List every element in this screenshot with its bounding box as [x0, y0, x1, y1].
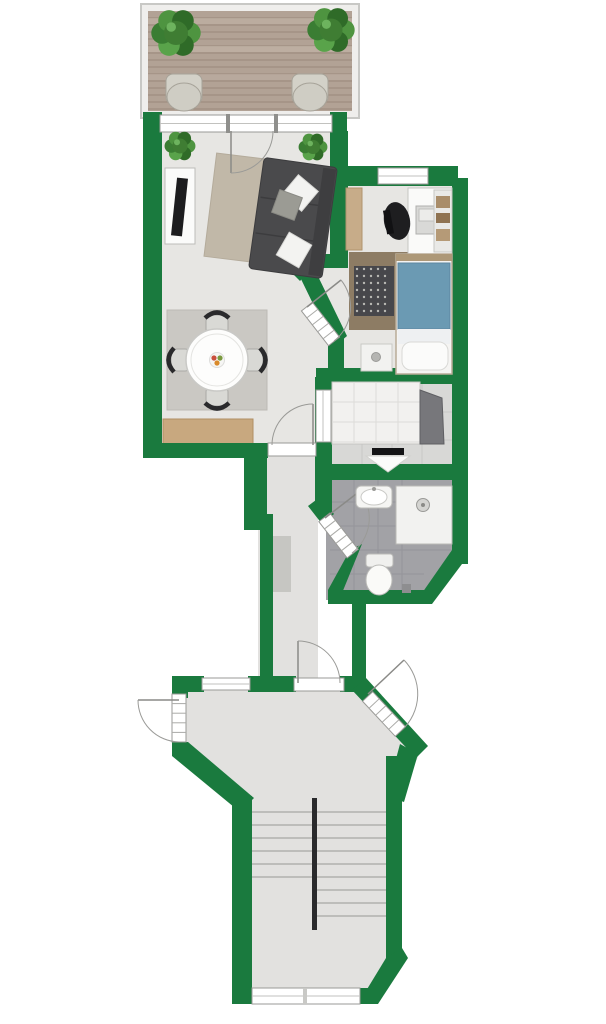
window-living-jamb-1 — [226, 114, 230, 133]
fruit-green — [217, 355, 222, 360]
shelf-book-1 — [436, 196, 450, 208]
wall-corridor-right-lower — [352, 598, 366, 684]
entrance-door-frame — [294, 678, 344, 691]
living-door-frame — [268, 443, 316, 456]
sink-tap — [372, 487, 376, 491]
window-living-jamb-2 — [274, 114, 278, 133]
neighbor-door-left-frame — [172, 694, 186, 742]
bed-headboard — [396, 254, 452, 261]
neighbor-door-right-arc — [402, 660, 418, 730]
shelf-book-2 — [436, 213, 450, 223]
second-tv-bar — [372, 448, 404, 455]
sideboard — [163, 419, 253, 445]
wall-stairs-right — [386, 756, 402, 960]
balcony-chair-right-seat — [293, 83, 327, 111]
laptop-screen — [419, 209, 435, 221]
wall-window-right-end — [330, 112, 347, 133]
shower-head-dot — [421, 503, 425, 507]
wall-landing-topmid — [248, 676, 296, 692]
nightstand-knob — [372, 353, 381, 362]
corridor-mat — [272, 536, 291, 592]
shelf-book-3 — [436, 229, 450, 241]
second-wardrobe — [420, 390, 444, 444]
floorplan-page — [0, 0, 606, 1024]
balcony-chair-left-seat — [167, 83, 201, 111]
sink-basin — [361, 489, 387, 505]
wall-corridor-left-lower — [260, 522, 273, 684]
fruit-orange — [214, 360, 219, 365]
wall-left — [143, 112, 162, 458]
bed-pillow — [402, 342, 448, 370]
wall-living-bottom — [143, 443, 268, 458]
shower — [396, 486, 452, 544]
window-stairs-mullion — [303, 988, 307, 1004]
wall-stairs-left — [232, 796, 252, 1004]
stairs-divider-rail — [312, 798, 317, 930]
floorplan-canvas — [0, 0, 606, 1024]
landing-stairs-floor — [186, 690, 420, 998]
neighbor-door-right-leaf — [368, 660, 404, 694]
toilet-bowl — [366, 565, 392, 595]
bed-duvet-blue — [398, 263, 450, 329]
bedroom-wardrobe-tan — [346, 188, 362, 250]
bathroom-drain — [402, 584, 411, 593]
bedroom-rug-dark — [354, 266, 394, 316]
fruit-red — [211, 355, 216, 360]
